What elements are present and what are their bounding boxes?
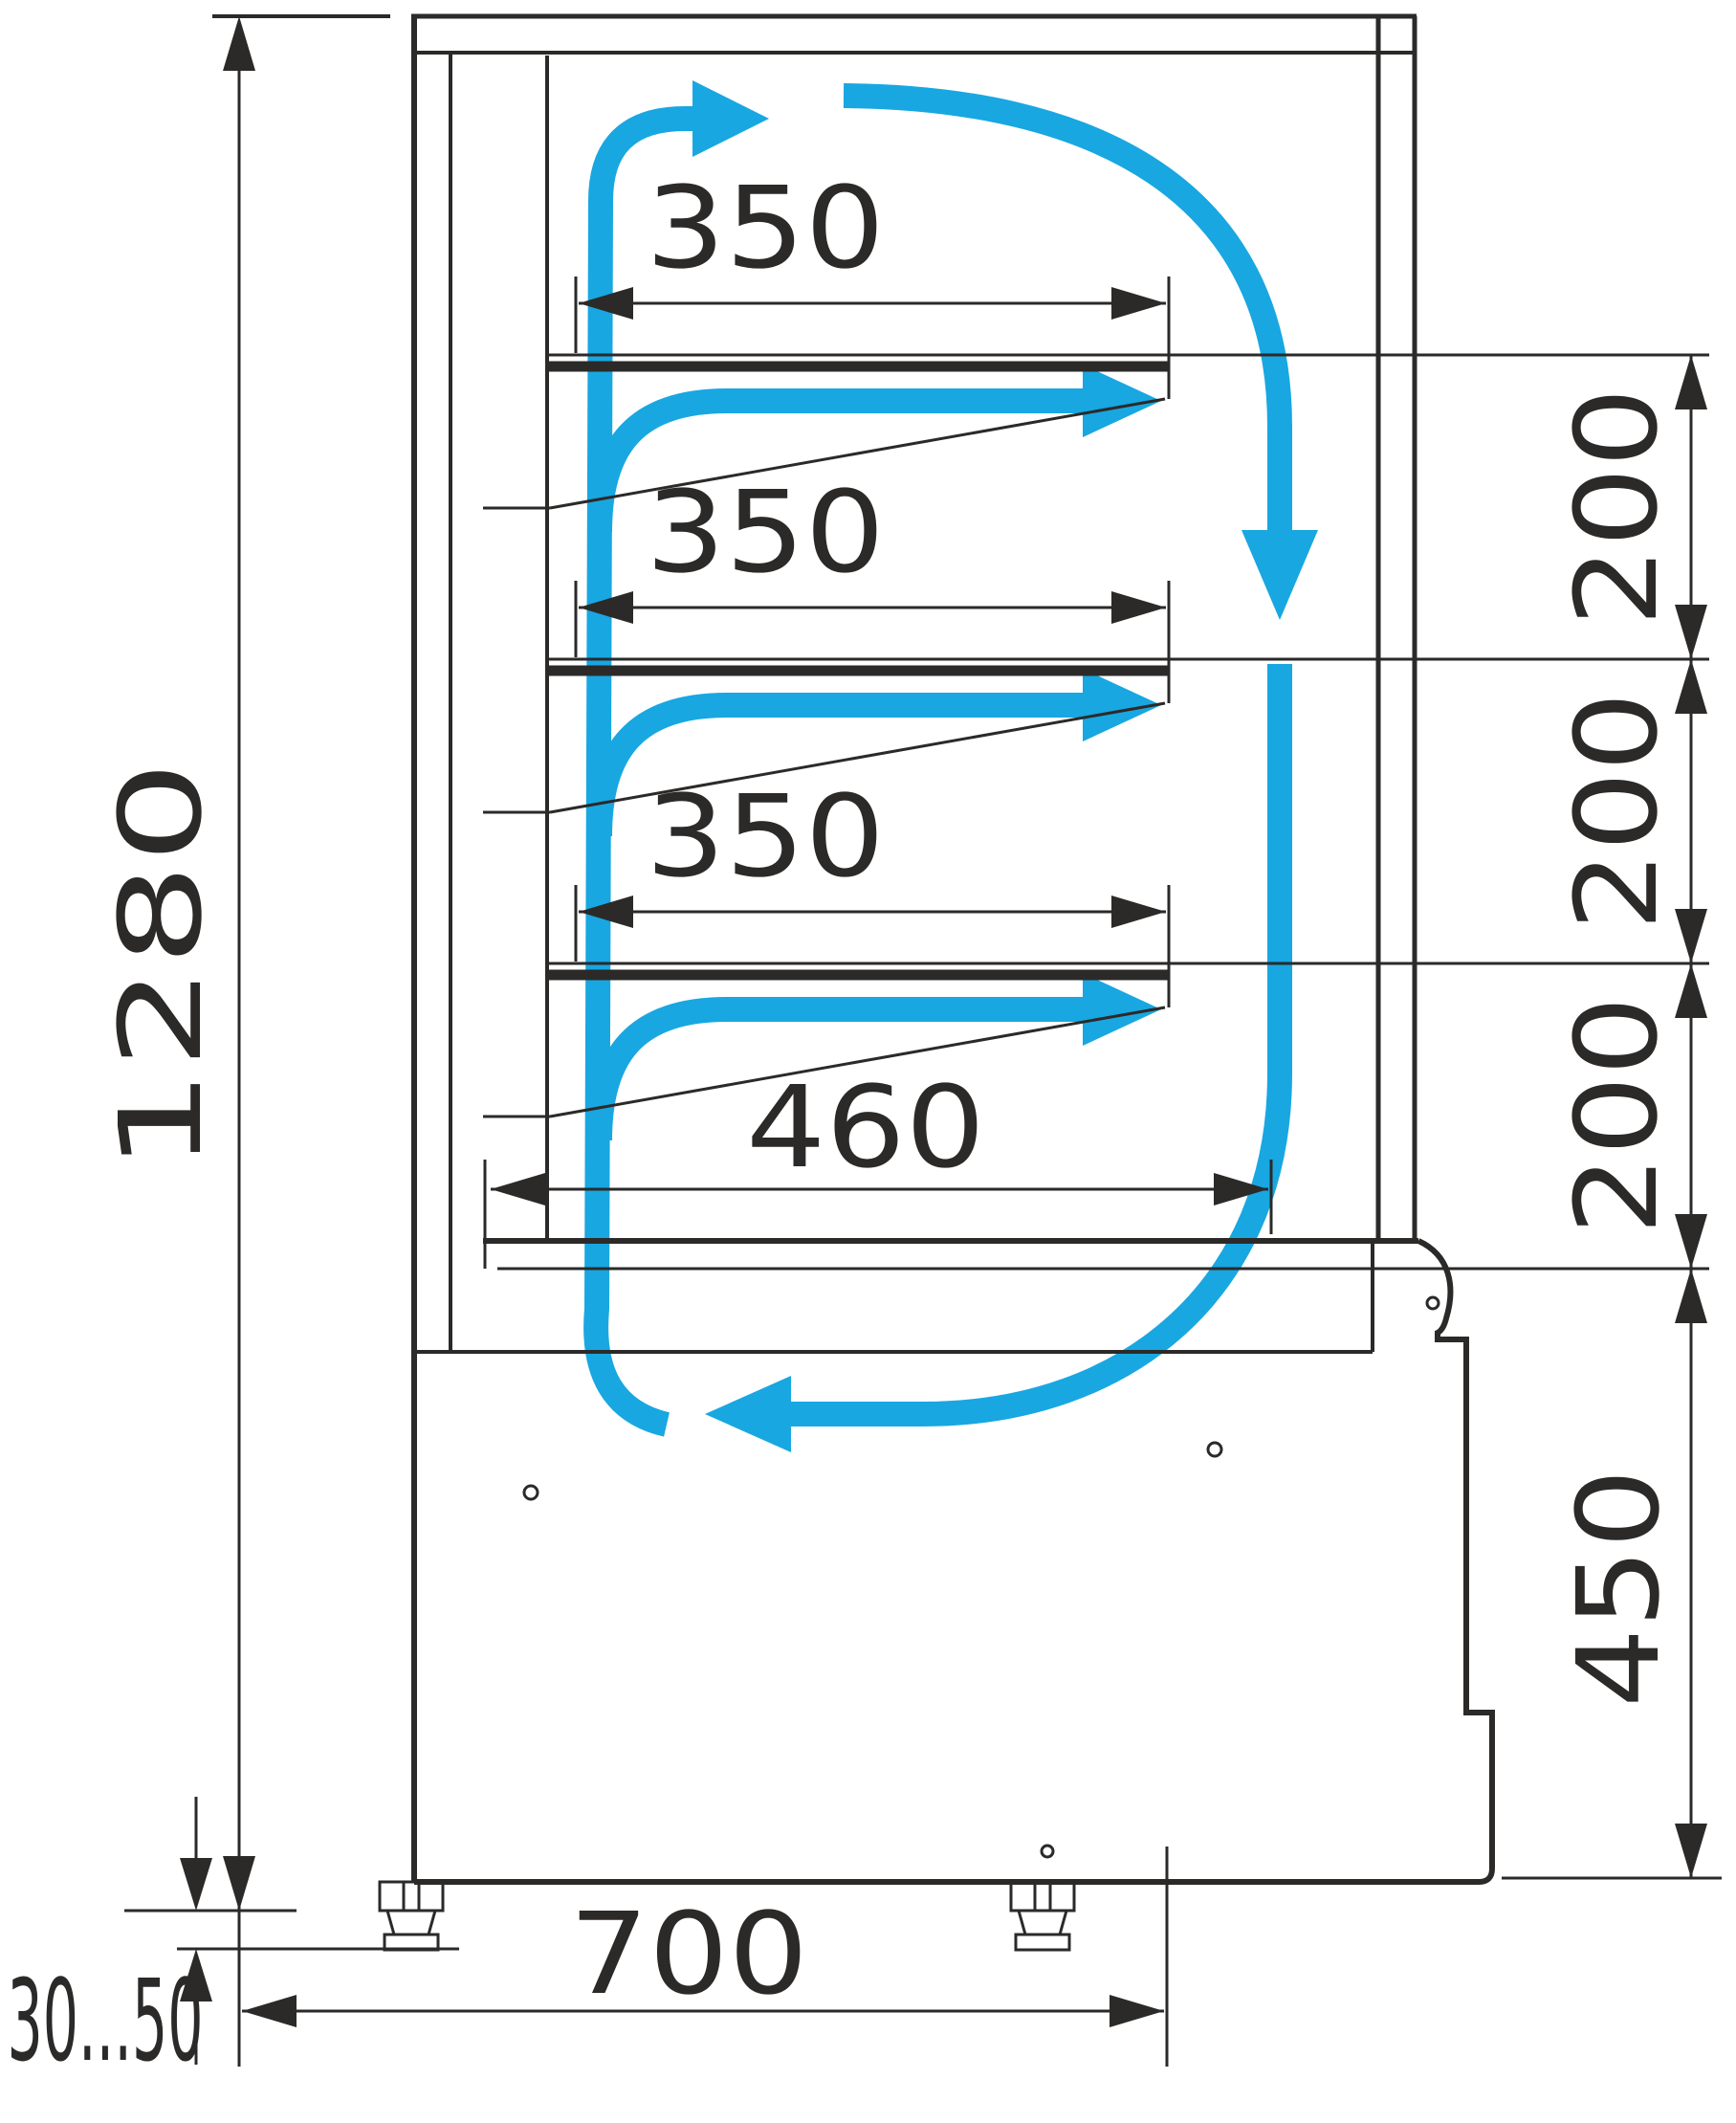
rear-foot bbox=[1011, 1882, 1074, 1950]
front-foot bbox=[380, 1882, 443, 1950]
dim-1280-arrow-down bbox=[223, 1856, 255, 1911]
dim-1280-arrow-up bbox=[223, 16, 255, 71]
airflow-top-arc-path bbox=[844, 96, 1280, 530]
airflow-down-arrow bbox=[1242, 530, 1318, 620]
screw-circle-4 bbox=[1042, 1846, 1053, 1857]
dim-700-arrow-right bbox=[1110, 1995, 1164, 2027]
dim-450-arrow-down bbox=[1675, 1824, 1707, 1878]
drawing-sheet: 1280 350 350 350 460 200 200 200 450 700… bbox=[0, 0, 1736, 2123]
airflow-layer bbox=[596, 96, 1280, 1425]
dim-450-arrow-up bbox=[1675, 1269, 1707, 1323]
front-foot-cone bbox=[387, 1911, 435, 1935]
dim-350-1-label: 350 bbox=[646, 162, 885, 294]
dim-700-arrow-left bbox=[242, 1995, 297, 2027]
dim-feet-label: 30...50 bbox=[8, 1955, 204, 2087]
case-linework bbox=[124, 16, 1722, 2067]
dim-200-1-label: 200 bbox=[1550, 387, 1682, 627]
dim-feet-arrow-down bbox=[180, 1858, 212, 1911]
dim-350-1-arrow-right bbox=[1111, 287, 1166, 320]
dim-450-label: 450 bbox=[1552, 1469, 1684, 1708]
airflow-bottom-left-arrow bbox=[705, 1376, 791, 1452]
rear-foot-cone bbox=[1019, 1911, 1066, 1935]
dim-200-2-label: 200 bbox=[1550, 692, 1682, 931]
dim-1280-label: 1280 bbox=[95, 761, 227, 1172]
dim-460-label: 460 bbox=[746, 1061, 985, 1193]
base-front-outline bbox=[414, 1241, 1492, 1882]
screw-circle-3 bbox=[1427, 1297, 1439, 1309]
screw-circle-2 bbox=[1208, 1443, 1221, 1456]
technical-drawing: 1280 350 350 350 460 200 200 200 450 700… bbox=[0, 0, 1736, 2123]
dim-700-label: 700 bbox=[569, 1888, 808, 2020]
dimension-labels: 1280 350 350 350 460 200 200 200 450 700… bbox=[8, 162, 1685, 2087]
front-foot-neck bbox=[380, 1882, 443, 1911]
airflow-top-right-arrow bbox=[692, 80, 769, 157]
dim-460-arrow-left bbox=[491, 1173, 545, 1205]
rear-foot-pad bbox=[1016, 1935, 1069, 1950]
screw-circle-1 bbox=[524, 1486, 538, 1499]
dim-350-2-arrow-right bbox=[1111, 591, 1166, 624]
dim-350-3-arrow-right bbox=[1111, 896, 1166, 928]
dim-350-2-label: 350 bbox=[646, 466, 885, 598]
dim-200-3-label: 200 bbox=[1550, 996, 1682, 1235]
rear-foot-neck bbox=[1011, 1882, 1074, 1911]
dim-350-3-label: 350 bbox=[646, 770, 885, 902]
